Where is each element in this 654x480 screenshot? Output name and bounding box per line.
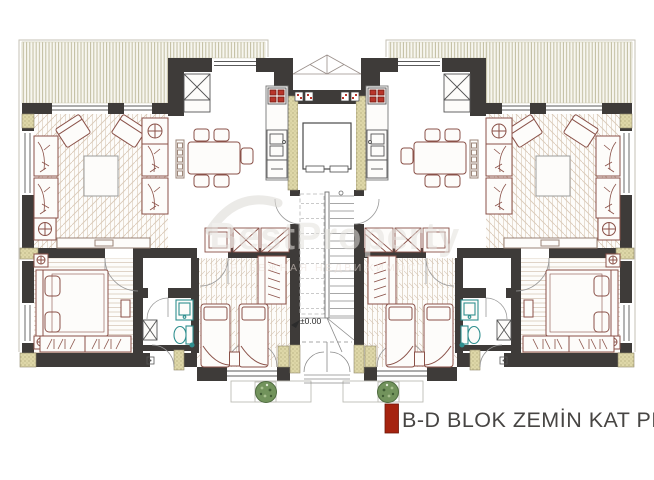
- title-accent-square: [385, 404, 399, 433]
- plan-title: B-D BLOK ZEMİN KAT PLANI: [402, 408, 654, 432]
- elevator-icon: [298, 104, 356, 190]
- level-marker-text: ±0.00: [300, 316, 321, 326]
- title-block: B-D BLOK ZEMİN KAT PLANI: [385, 404, 654, 433]
- entry-canopy: [293, 55, 361, 74]
- floor-plan-drawing: ±0.00 BestProperty ЗАРУБЕЖНАЯ НЕДВИЖИМОС…: [0, 0, 654, 480]
- watermark-sub-text: ЗАРУБЕЖНАЯ НЕДВИЖИМОСТЬ: [212, 262, 436, 274]
- watermark-main-text: BestProperty: [210, 216, 461, 258]
- floor-plan-page: ±0.00 BestProperty ЗАРУБЕЖНАЯ НЕДВИЖИМОС…: [0, 0, 654, 480]
